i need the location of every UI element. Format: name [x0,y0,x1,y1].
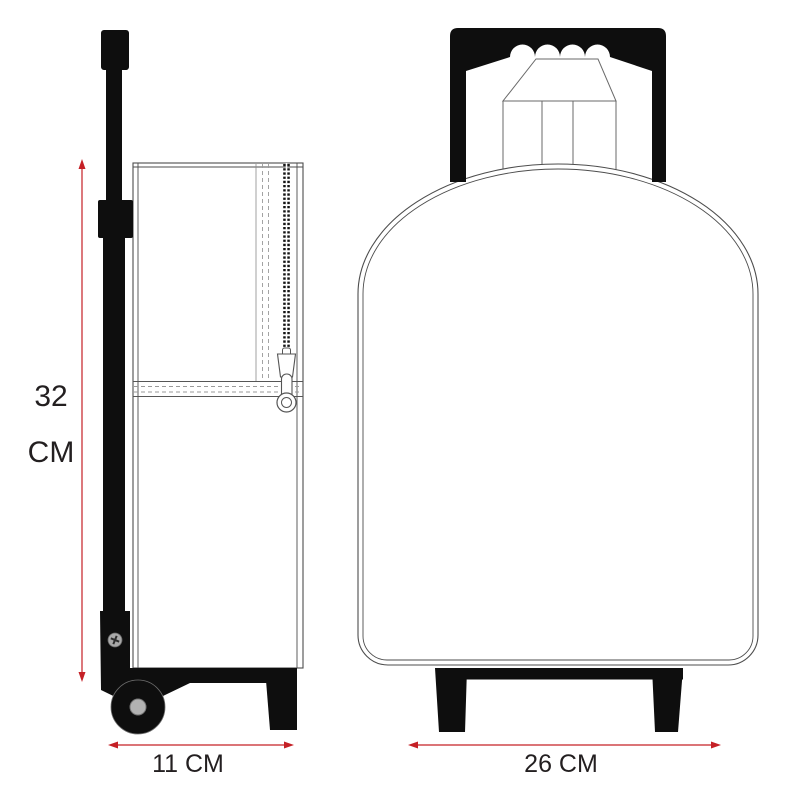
telescopic-handle-side [98,30,133,613]
wheel-hub [130,699,146,715]
handle-housing [503,59,616,172]
arrowhead-left [408,742,418,749]
telescopic-pole-upper [106,66,122,204]
height-dimension-label: 32 CM [24,383,78,467]
arrowhead-down [79,672,86,682]
height-value: 32 [34,380,67,413]
front-view-drawing [358,28,758,732]
left-leg [435,668,467,732]
housing-trapezoid [503,59,616,101]
rear-foot [265,668,297,730]
telescopic-pole-lower [103,236,125,613]
housing-base [503,101,616,172]
height-dimension-arrow [79,159,86,682]
right-leg [652,668,683,732]
width-dimension-label: 26 CM [501,750,621,779]
side-bag-outline [133,163,303,668]
side-view-drawing [98,30,303,734]
front-bag-outline [358,164,758,665]
front-base [435,668,683,732]
depth-dimension-arrow [108,742,294,749]
width-dimension-arrow [408,742,721,749]
depth-dimension-label: 11 CM [128,750,248,779]
dimension-diagram-canvas [0,0,800,800]
product-dimension-diagram: 32 CM 11 CM 26 CM [0,0,800,800]
base-bar [436,668,683,680]
zipper-pull-ring-hole [282,398,292,408]
pole-joint-block [98,200,133,238]
arrowhead-up [79,159,86,169]
handle-grip-knob [101,30,129,70]
arrowhead-right [284,742,294,749]
height-unit: CM [28,436,75,469]
arrowhead-right [711,742,721,749]
arrowhead-left [108,742,118,749]
